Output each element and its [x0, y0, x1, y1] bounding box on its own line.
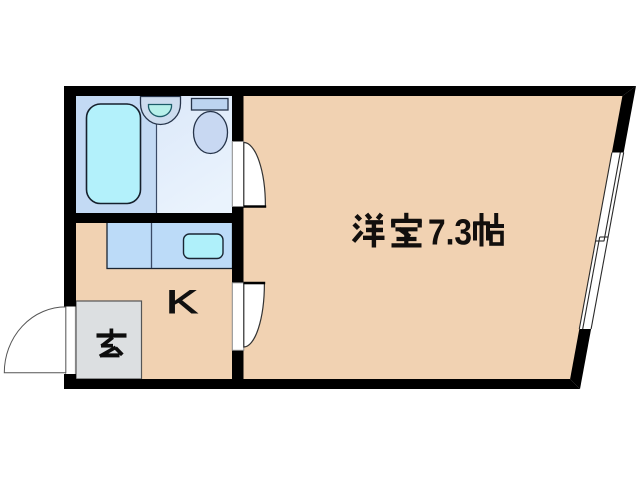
- svg-text:7.3: 7.3: [428, 212, 472, 253]
- svg-text:K: K: [166, 284, 198, 320]
